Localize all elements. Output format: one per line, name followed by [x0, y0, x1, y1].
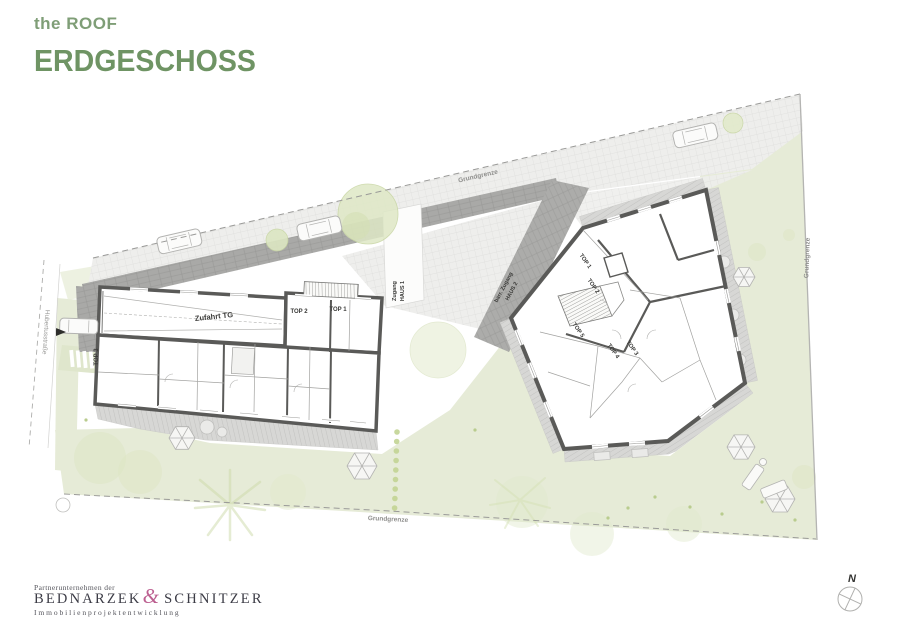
site-plan-sheet: the ROOF ERDGESCHOSS: [0, 0, 900, 637]
compass-cross: [839, 588, 861, 610]
company-logo: Partnerunternehmen der BEDNARZEK & SCHNI…: [34, 583, 264, 617]
tree: [792, 465, 816, 489]
compass: N: [838, 573, 862, 611]
tree: [342, 212, 370, 240]
tree: [783, 229, 795, 241]
zugang-haus1-line1: Zugang: [392, 281, 398, 301]
zugang-haus1-line2: HAUS 1: [400, 281, 406, 301]
side-table: [760, 459, 767, 466]
grundgrenze-right: Grundgrenze: [803, 237, 811, 278]
logo-brand-line: BEDNARZEK & SCHNITZER: [34, 593, 264, 606]
grundgrenze-bottom: Grundgrenze: [368, 515, 409, 524]
tree: [74, 432, 126, 484]
logo-tagline: Immobilienprojektentwicklung: [34, 608, 264, 617]
haus1-label-top2: TOP 2: [290, 309, 308, 315]
logo-brand-second: SCHNITZER: [164, 593, 264, 606]
street-name: Hubertusstraße: [40, 310, 50, 356]
tree: [723, 113, 743, 133]
haus1-bath: [231, 347, 254, 374]
tree: [748, 243, 766, 261]
tree: [266, 229, 288, 251]
small-round-table: [56, 498, 70, 512]
haus1-label-top3: TOP 3: [94, 348, 100, 366]
site-plan-drawing: Zufahrt TG TOP 2 TOP 1 TOP 3 TOP 1 TOP 2…: [0, 0, 900, 637]
haus1-top12-block: [285, 293, 382, 353]
tree: [666, 506, 702, 542]
compass-north-label: N: [848, 573, 857, 585]
haus1-label-top1: TOP 1: [329, 307, 347, 313]
tree: [410, 322, 466, 378]
plan-area: Zufahrt TG TOP 2 TOP 1 TOP 3 TOP 1 TOP 2…: [0, 0, 900, 637]
tree: [118, 450, 162, 494]
building-haus1: Zufahrt TG TOP 2 TOP 1 TOP 3: [94, 282, 382, 431]
logo-brand-first: BEDNARZEK: [34, 593, 142, 606]
logo-ampersand: &: [143, 590, 162, 603]
